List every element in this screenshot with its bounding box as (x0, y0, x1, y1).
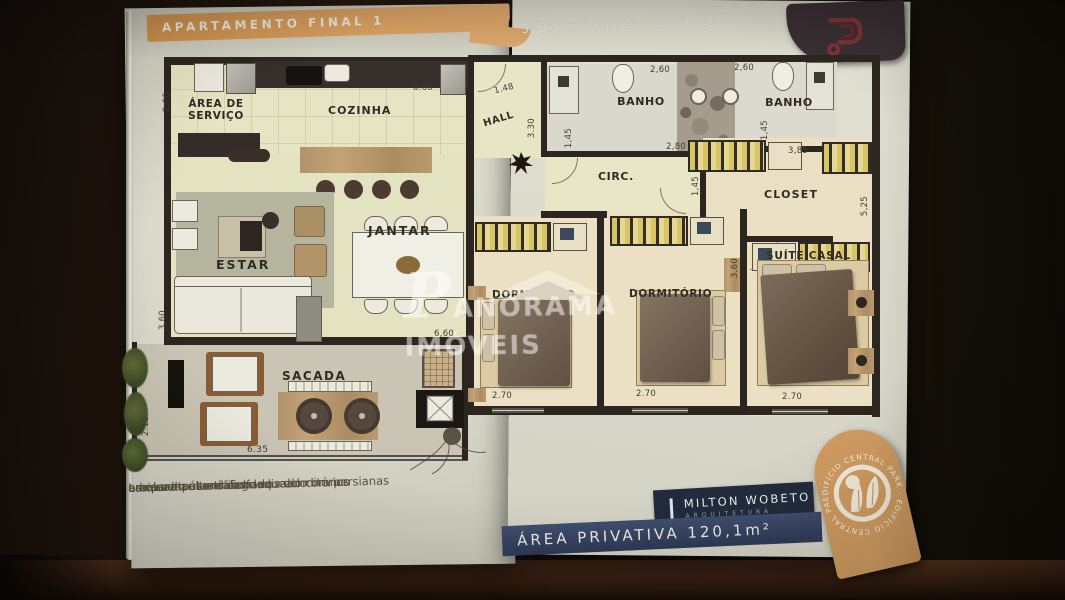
sofa (174, 286, 312, 334)
dim-suite-side-h: 5,25 (860, 196, 870, 216)
architect-logo-bar (669, 498, 673, 520)
room-label-circ: CIRC. (598, 170, 634, 183)
room-label-closet: CLOSET (764, 188, 818, 201)
dim-closet-h: 1,45 (691, 176, 701, 196)
wall (740, 209, 747, 415)
room-label-servico: ÁREA DE SERVIÇO (176, 98, 256, 122)
feature-item: orcelanato nas salas (128, 475, 246, 497)
sofa-cushion-line (240, 288, 242, 332)
page-edge (126, 10, 133, 560)
wardrobe (688, 140, 766, 172)
blanket (760, 269, 859, 385)
laundry-tank (194, 63, 224, 92)
window (492, 408, 544, 413)
room-label-cozinha: COZINHA (328, 104, 391, 117)
dim-cozinha-w: 6.60 (413, 83, 433, 93)
brochure-photo: APARTAMENTO FINAL 1 3 Dormitórios - 1 Su… (0, 0, 1065, 600)
pouf (296, 398, 332, 434)
room-label-sacada: SACADA (282, 369, 346, 383)
bar-stool (344, 180, 363, 199)
wall (541, 57, 547, 157)
wardrobe-dorm2 (610, 216, 688, 246)
lamp (856, 297, 867, 308)
plant (122, 438, 148, 472)
side-table (172, 200, 198, 222)
room-label-estar: ESTAR (216, 257, 270, 272)
dim-banho1-h: 1,45 (564, 128, 574, 148)
window (632, 408, 688, 413)
room-label-banho2: BANHO (754, 96, 824, 109)
wall (468, 55, 880, 62)
toilet (612, 64, 634, 93)
wardrobe-dorm1 (475, 222, 551, 252)
toilet (772, 62, 794, 91)
dim-suite-w: 2.70 (782, 392, 802, 402)
armchair (294, 206, 325, 237)
window (772, 409, 828, 414)
watermark: PANORAMA IMÓVEIS (403, 253, 725, 363)
shaft-x-icon (426, 395, 454, 422)
dim-banho2-w: 2,60 (734, 63, 754, 73)
washer (226, 63, 256, 94)
sink-basin (690, 88, 707, 105)
room-label-jantar: JANTAR (368, 223, 432, 238)
lounge-cushion (206, 406, 252, 442)
bar-stool (400, 180, 419, 199)
dim-circ-w: 2,80 (666, 142, 686, 152)
dim-banho1-w: 2,60 (650, 65, 670, 75)
cooktop (286, 66, 322, 85)
room-label-suite: SUÍTE CASAL (766, 250, 851, 262)
tv (240, 221, 262, 251)
dim-estar-h: 3,60 (158, 310, 168, 330)
shower-drain (558, 76, 569, 87)
plant (122, 348, 148, 388)
dim-dorm2-w: 2.70 (636, 389, 656, 399)
dim-hall-h: 3.30 (527, 118, 537, 138)
shower-drain (814, 72, 825, 83)
kitchen-island (300, 147, 432, 173)
decor-plate (262, 212, 279, 229)
dim-dorm1-w: 2.70 (492, 391, 512, 401)
kitchen-counter (252, 61, 468, 88)
table-shadow (0, 555, 120, 600)
bench-cushion (288, 441, 372, 451)
fridge (440, 64, 466, 95)
plant-sprig-icon (408, 420, 488, 476)
shower (549, 66, 579, 114)
dresser-tv (697, 222, 711, 234)
dresser-tv (560, 228, 574, 240)
lounge-cushion (212, 356, 258, 392)
room-label-banho1: BANHO (606, 95, 676, 108)
pouf (344, 398, 380, 434)
dim-banho2-h: 1,45 (760, 120, 770, 140)
sofa-side-cabinet (296, 296, 322, 342)
sink-basin (722, 88, 739, 105)
wardrobe (822, 142, 872, 174)
lamp (856, 355, 867, 366)
nightstand (468, 388, 486, 402)
bar-stool (372, 180, 391, 199)
dim-closet-w: 3,85 (788, 146, 808, 156)
planter-box (168, 360, 184, 408)
side-table (172, 228, 198, 250)
hall-plant-icon (508, 150, 534, 176)
dim-dorm2-h: 3,60 (730, 258, 740, 278)
kitchen-sink (324, 64, 350, 82)
decor-bowl (228, 149, 270, 162)
dim-servico-h: 2.00 (162, 92, 172, 112)
armchair (294, 244, 327, 277)
dim-sacada-h: 2.12 (141, 416, 151, 436)
architect-name: MILTON WOBETO (683, 490, 810, 511)
dim-sacada-w: 6.35 (247, 445, 268, 455)
